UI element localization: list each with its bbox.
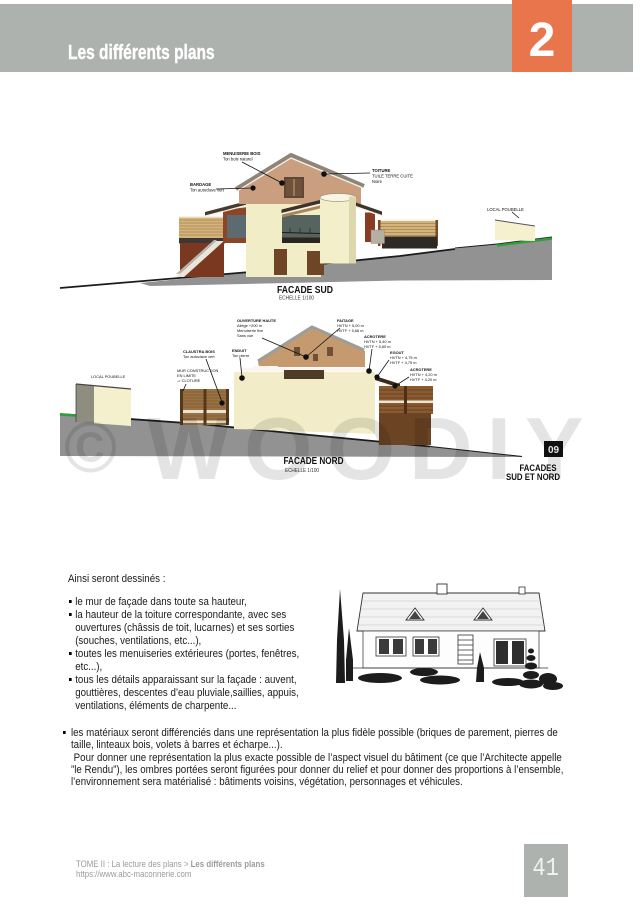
svg-text:BARDAGE: BARDAGE [190, 182, 211, 187]
svg-text:FACADE SUD: FACADE SUD [277, 284, 333, 296]
svg-text:HVTF + 4,20 m: HVTF + 4,20 m [410, 377, 437, 382]
svg-text:Ton autoclave vert: Ton autoclave vert [190, 188, 225, 193]
svg-text:MENUISERIE BOIS: MENUISERIE BOIS [223, 151, 261, 156]
svg-text:LOCAL POUBELLE: LOCAL POUBELLE [487, 207, 524, 212]
svg-text:Ton bois naturel: Ton bois naturel [223, 157, 253, 162]
svg-text:ECHELLE 1/100: ECHELLE 1/100 [279, 296, 314, 302]
svg-text:TOITURE: TOITURE [372, 168, 391, 173]
svg-text:Ton pierre: Ton pierre [232, 353, 249, 358]
svg-text:HVTF + 4,75 m: HVTF + 4,75 m [390, 360, 417, 365]
svg-text:TUILE TERRE CUITE: TUILE TERRE CUITE [372, 174, 413, 179]
svg-text:Ton autoclave vert: Ton autoclave vert [183, 354, 215, 359]
svg-text:HVTF + 5,66 m: HVTF + 5,66 m [337, 328, 364, 333]
svg-text:LOCAL POUBELLE: LOCAL POUBELLE [91, 374, 126, 379]
svg-text:-> CLOTURE: -> CLOTURE [177, 378, 201, 383]
svg-text:HVTF + 5,60 m: HVTF + 5,60 m [364, 344, 391, 349]
svg-text:Sans vue: Sans vue [237, 333, 253, 338]
svg-text:Noire: Noire [372, 179, 383, 184]
